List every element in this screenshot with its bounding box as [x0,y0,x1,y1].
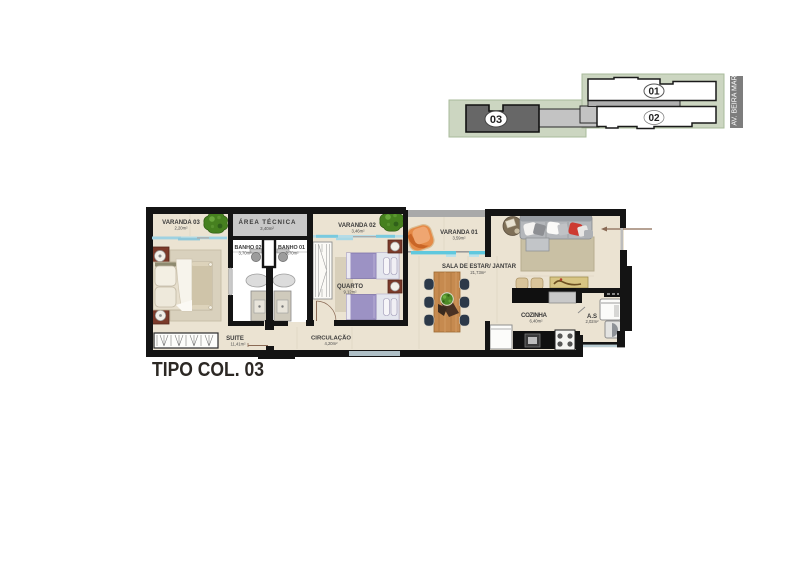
svg-text:TIPO COL. 03: TIPO COL. 03 [152,358,264,381]
svg-text:3,59m²: 3,59m² [452,236,466,241]
svg-text:02: 02 [648,113,660,124]
svg-text:3,70m²: 3,70m² [238,251,252,256]
svg-text:2,20m²: 2,20m² [174,226,188,231]
svg-text:6,40m²: 6,40m² [529,319,543,324]
svg-text:AV. BEIRA MAR: AV. BEIRA MAR [732,75,739,125]
svg-text:21,73m²: 21,73m² [470,270,486,275]
svg-text:2,02m²: 2,02m² [585,319,599,324]
svg-text:3,70m²: 3,70m² [285,251,299,256]
svg-text:ÁREA TÉCNICA: ÁREA TÉCNICA [239,218,297,226]
svg-text:3,46m²: 3,46m² [351,229,365,234]
svg-text:SALA DE ESTAR/ JANTAR: SALA DE ESTAR/ JANTAR [442,263,516,270]
svg-text:01: 01 [648,87,660,98]
svg-text:3,40m²: 3,40m² [260,226,274,231]
svg-text:4,20m²: 4,20m² [324,341,338,346]
svg-text:9,12m²: 9,12m² [343,290,357,295]
svg-text:11,41m²: 11,41m² [230,342,246,347]
svg-text:03: 03 [490,114,502,126]
